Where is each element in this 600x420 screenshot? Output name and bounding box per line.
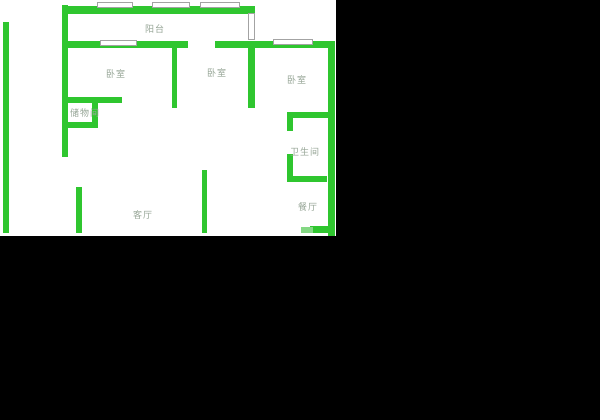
bathroom-label: 卫生间 — [290, 149, 320, 158]
outer-left-wall-wall — [3, 22, 9, 233]
living-room-label: 客厅 — [133, 212, 153, 221]
dining-south-stub-muted-wall — [301, 227, 313, 233]
storage-bottom-wall-wall — [62, 122, 98, 128]
bathroom-bottom-wall-wall — [287, 176, 327, 182]
north-wall-window-icon — [100, 40, 137, 46]
floorplan-canvas: 阳台卧室卧室卧室储物间卫生间餐厅客厅 — [0, 0, 336, 236]
balcony-side-window-icon — [248, 13, 255, 40]
interior-left-wall-wall — [62, 5, 68, 157]
bedroom-right-window-icon — [273, 39, 313, 45]
bedroom-divider-west-wall — [172, 41, 177, 108]
balcony-window-1-icon — [97, 2, 133, 8]
bathroom-left-wall-upper-wall — [287, 118, 293, 131]
bathroom-top-wall-wall — [287, 112, 328, 118]
dining-room-label: 餐厅 — [298, 204, 318, 213]
bedroom-left-label: 卧室 — [106, 71, 126, 80]
living-room-left-wall-wall — [76, 187, 82, 233]
dining-south-stub-wall — [310, 226, 332, 233]
bedroom-divider-east-wall — [248, 41, 255, 108]
balcony-label: 阳台 — [145, 26, 165, 35]
balcony-window-2-icon — [152, 2, 190, 8]
outer-right-wall-wall — [328, 41, 335, 236]
storage-room-label: 储物间 — [70, 110, 100, 119]
balcony-window-3-icon — [200, 2, 240, 8]
bedroom-right-label: 卧室 — [287, 77, 307, 86]
bedroom-middle-label: 卧室 — [207, 70, 227, 79]
living-dining-divider-wall — [202, 170, 207, 233]
